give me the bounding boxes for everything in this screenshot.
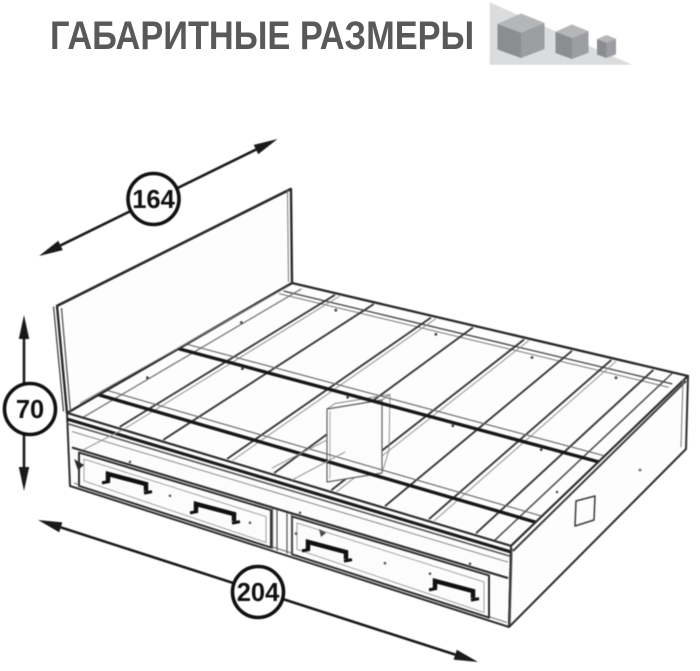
svg-text:70: 70 [16,396,44,424]
svg-text:204: 204 [237,579,280,607]
svg-text:164: 164 [132,186,175,214]
